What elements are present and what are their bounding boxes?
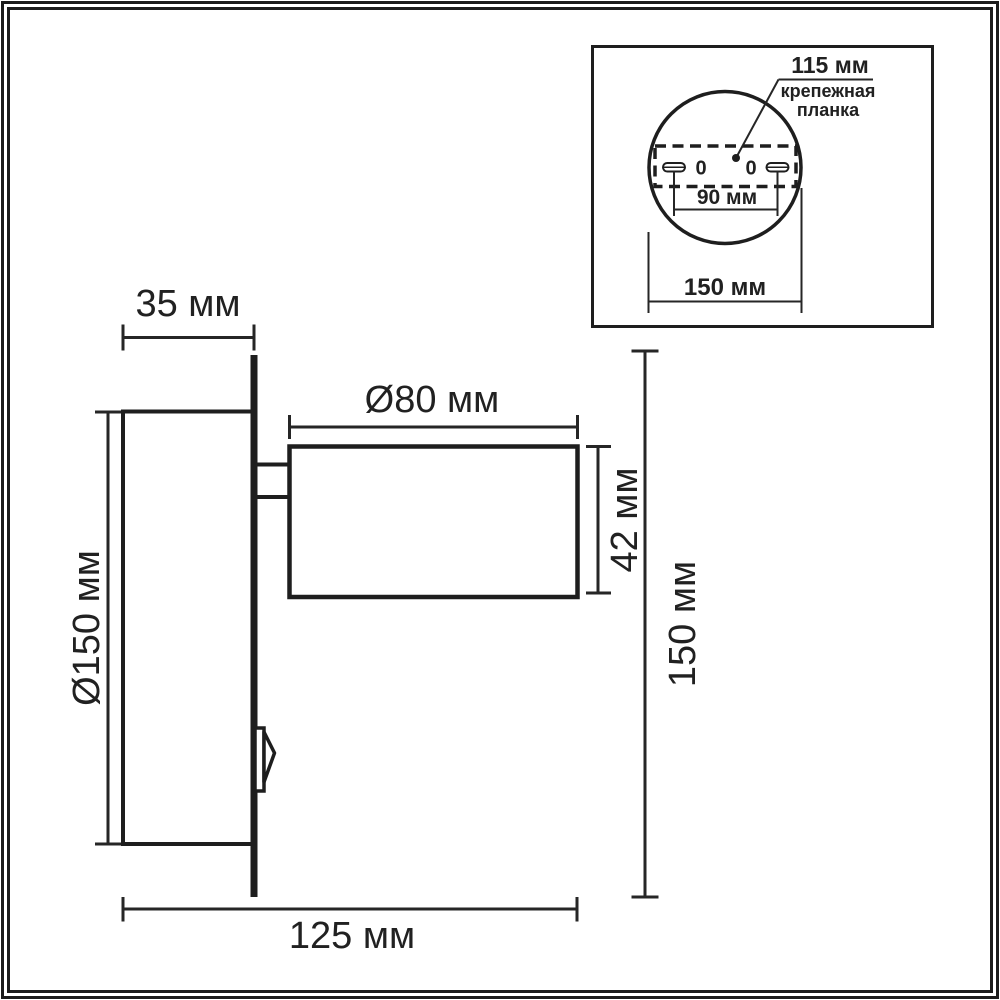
switch-toggle bbox=[264, 732, 275, 782]
label-hole-spacing: 90 мм bbox=[697, 186, 757, 209]
label-head-diameter: Ø80 мм bbox=[365, 379, 500, 421]
lamp-base-outline bbox=[123, 412, 254, 845]
lamp-dimension-diagram: 35 мм Ø150 мм Ø80 мм 42 мм 150 мм 125 мм… bbox=[0, 0, 1000, 1000]
label-base-diameter: Ø150 мм bbox=[66, 550, 108, 706]
switch bbox=[255, 728, 275, 791]
label-plate-name-2: планка bbox=[797, 100, 860, 120]
lamp-bracket-outline bbox=[254, 465, 290, 498]
mounting-inset: 0 0 115 мм крепежная планка 90 мм 150 мм bbox=[593, 47, 933, 327]
plate-leader-dot bbox=[732, 154, 740, 162]
hole-left: 0 bbox=[695, 158, 706, 180]
label-plate-length: 115 мм bbox=[791, 52, 869, 78]
label-head-height: 42 мм bbox=[604, 467, 646, 572]
side-view bbox=[123, 355, 578, 897]
label-total-depth: 125 мм bbox=[289, 915, 415, 957]
label-inset-diameter: 150 мм bbox=[684, 274, 766, 301]
dimension-base-depth bbox=[123, 325, 254, 351]
lamp-head-outline bbox=[290, 447, 578, 598]
label-base-depth: 35 мм bbox=[135, 283, 240, 325]
hole-right: 0 bbox=[745, 158, 756, 180]
label-total-height: 150 мм bbox=[662, 561, 704, 687]
dimension-total-height bbox=[632, 351, 659, 897]
label-plate-name-1: крепежная bbox=[781, 81, 876, 101]
